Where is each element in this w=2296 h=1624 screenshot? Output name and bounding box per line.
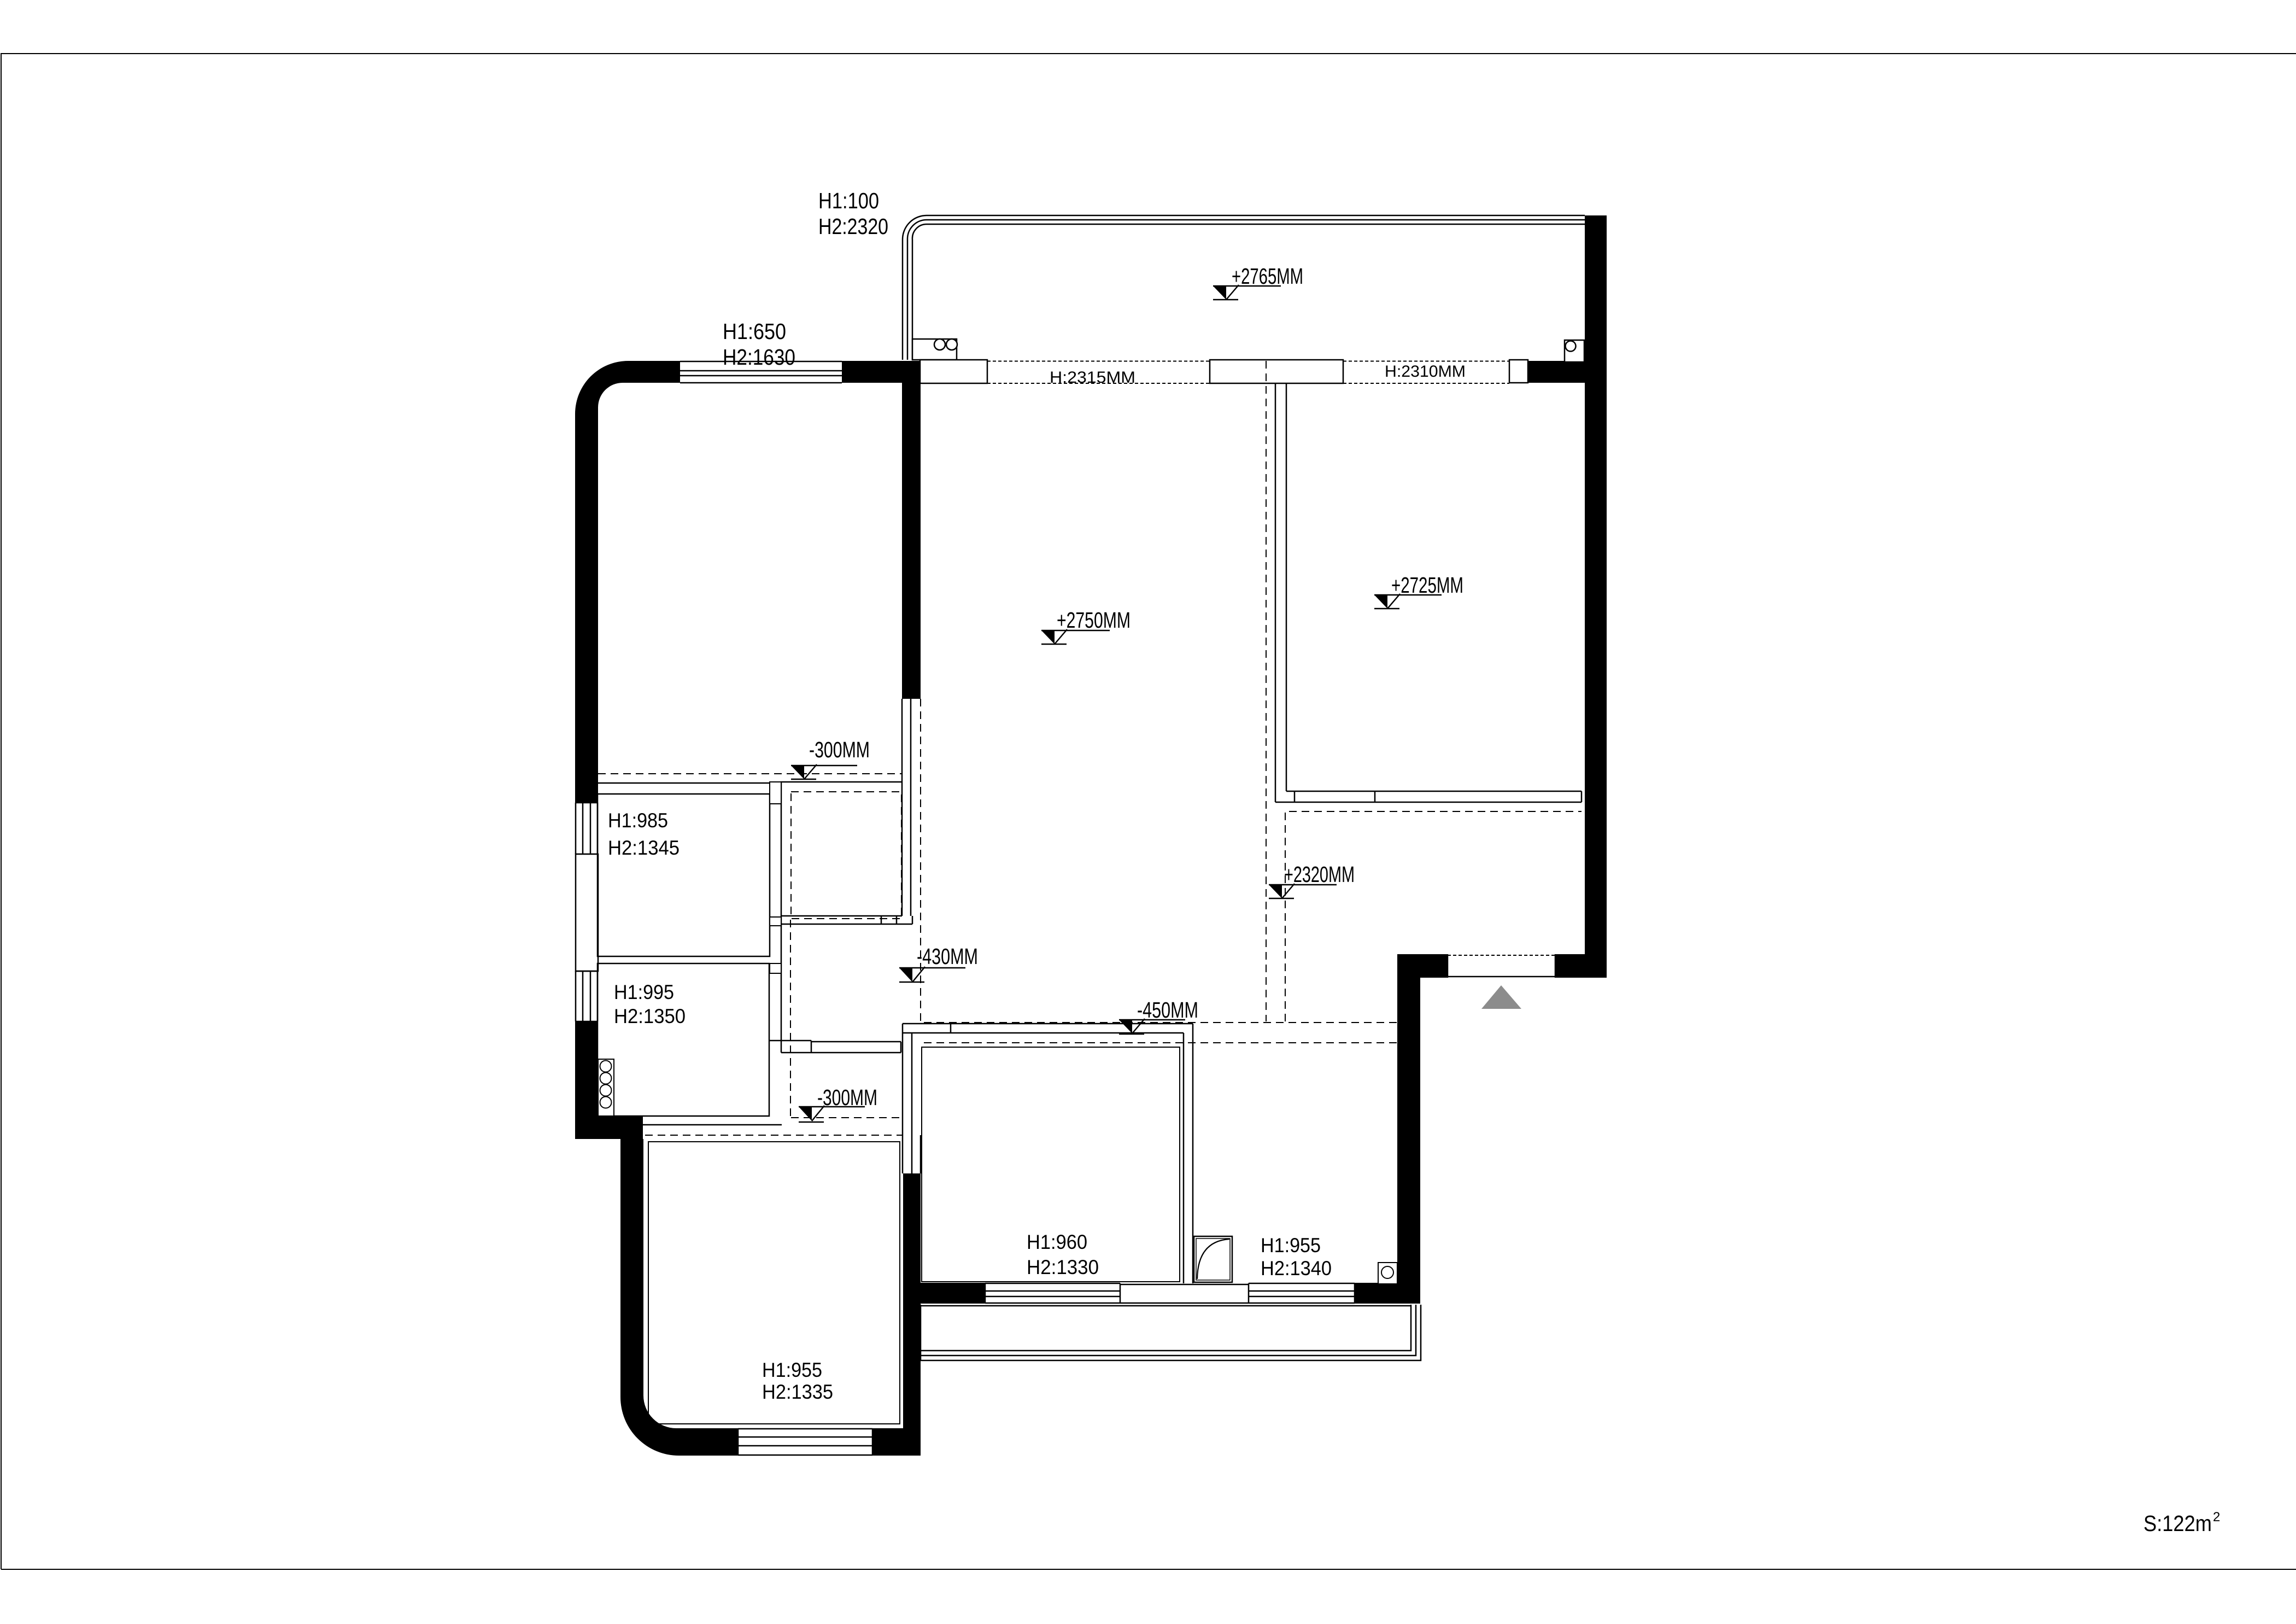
svg-text:+2320MM: +2320MM bbox=[1284, 862, 1355, 887]
svg-text:-450MM: -450MM bbox=[1137, 997, 1198, 1023]
svg-text:H1:100: H1:100 bbox=[818, 188, 879, 213]
svg-text:H1:985: H1:985 bbox=[608, 809, 668, 832]
svg-text:H1:955: H1:955 bbox=[762, 1359, 822, 1381]
svg-text:H:2315MM: H:2315MM bbox=[1050, 369, 1135, 387]
svg-text:H2:2320: H2:2320 bbox=[818, 214, 888, 239]
svg-text:-430MM: -430MM bbox=[917, 944, 978, 969]
svg-text:H2:1630: H2:1630 bbox=[723, 344, 795, 370]
svg-text:+2750MM: +2750MM bbox=[1057, 607, 1131, 633]
svg-text:H1:955: H1:955 bbox=[1261, 1234, 1321, 1257]
svg-text:S:122m: S:122m bbox=[2143, 1511, 2212, 1536]
svg-text:-300MM: -300MM bbox=[817, 1085, 877, 1110]
svg-text:+2765MM: +2765MM bbox=[1232, 264, 1303, 289]
svg-text:H2:1335: H2:1335 bbox=[762, 1381, 833, 1403]
svg-text:H2:1345: H2:1345 bbox=[608, 837, 680, 859]
svg-text:H1:650: H1:650 bbox=[723, 319, 786, 344]
svg-text:H:2310MM: H:2310MM bbox=[1385, 363, 1466, 381]
svg-text:H2:1340: H2:1340 bbox=[1261, 1257, 1332, 1280]
svg-text:H1:960: H1:960 bbox=[1027, 1231, 1087, 1253]
svg-text:+2725MM: +2725MM bbox=[1391, 573, 1463, 598]
svg-text:H1:995: H1:995 bbox=[614, 981, 674, 1003]
svg-text:H2:1350: H2:1350 bbox=[614, 1005, 686, 1027]
svg-text:2: 2 bbox=[2213, 1510, 2220, 1524]
svg-text:H2:1330: H2:1330 bbox=[1027, 1256, 1099, 1278]
svg-text:-300MM: -300MM bbox=[809, 737, 870, 762]
